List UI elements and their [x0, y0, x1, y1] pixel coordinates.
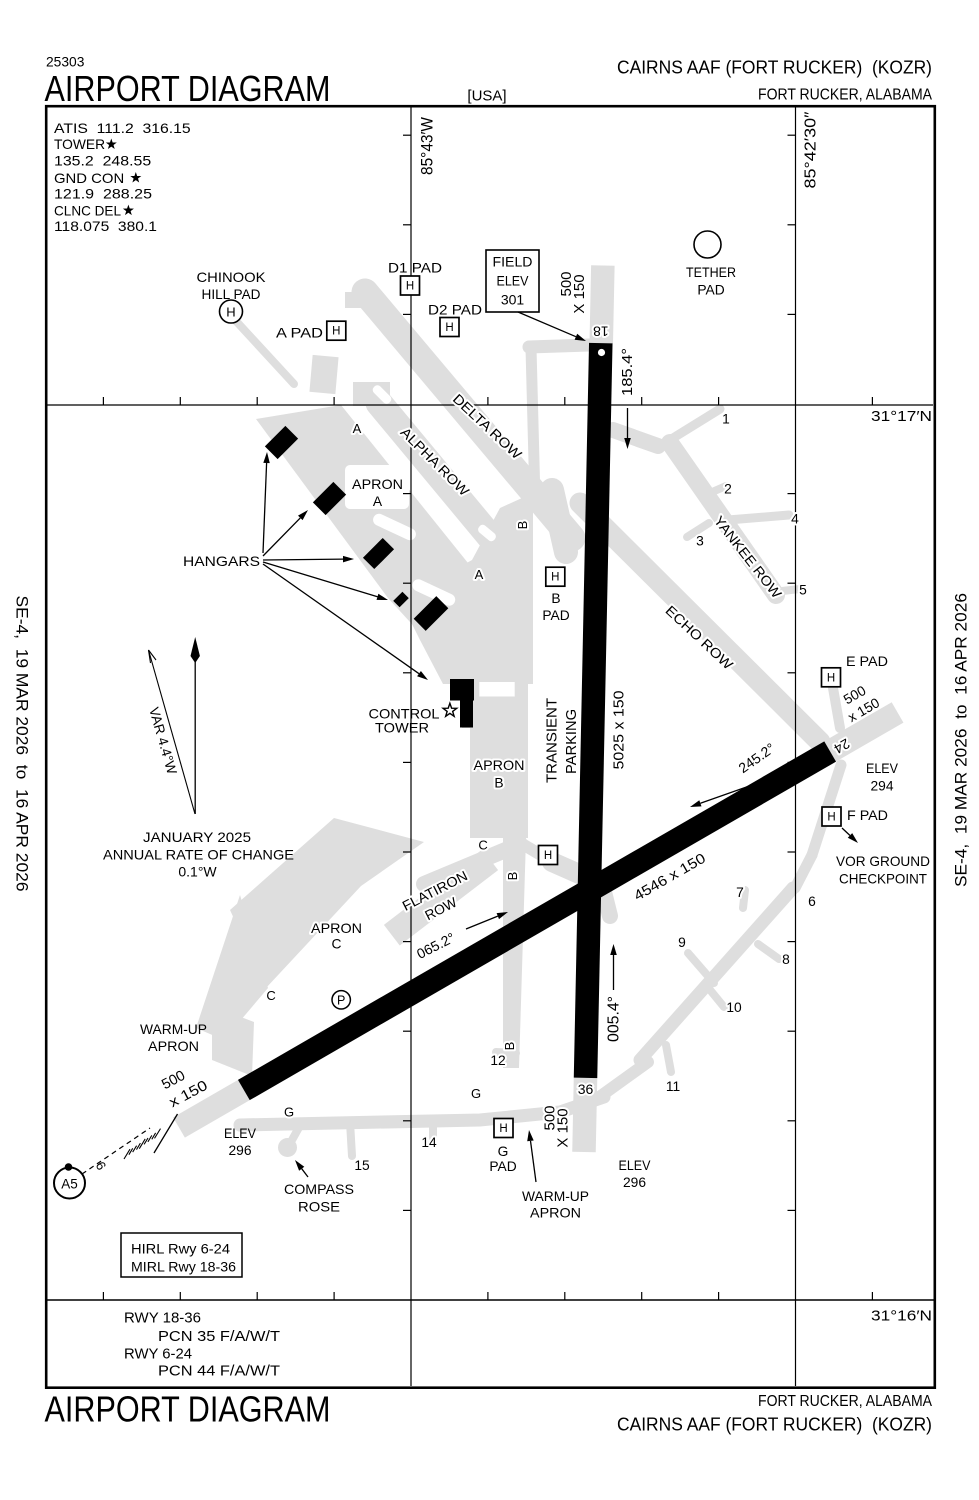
svg-text:H: H	[332, 326, 340, 338]
svg-text:PAD: PAD	[489, 1159, 516, 1174]
svg-text:PARKING: PARKING	[563, 709, 580, 774]
svg-text:296: 296	[623, 1175, 646, 1190]
svg-text:185.4°: 185.4°	[619, 348, 636, 396]
svg-text:B: B	[515, 521, 530, 530]
svg-text:6: 6	[808, 894, 816, 909]
svg-text:A5: A5	[61, 1177, 78, 1192]
svg-text:CAIRNS AAF (FORT RUCKER) (KOZ: CAIRNS AAF (FORT RUCKER) (KOZR)	[617, 57, 932, 78]
svg-text:A: A	[353, 421, 362, 436]
svg-text:SE-4, 19 MAR 2026 to 16 APR: SE-4, 19 MAR 2026 to 16 APR 2026	[13, 596, 31, 892]
svg-text:9: 9	[678, 935, 686, 950]
svg-text:296: 296	[228, 1143, 251, 1158]
svg-text:36: 36	[578, 1081, 594, 1097]
svg-text:ELEV: ELEV	[619, 1158, 652, 1173]
svg-text:5: 5	[799, 583, 807, 598]
svg-text:A: A	[373, 494, 383, 509]
svg-text:ELEV: ELEV	[224, 1126, 257, 1141]
svg-text:E PAD: E PAD	[846, 654, 888, 669]
svg-text:RWY 18-36: RWY 18-36	[124, 1311, 201, 1327]
svg-text:D1 PAD: D1 PAD	[388, 261, 442, 276]
svg-text:15: 15	[354, 1158, 370, 1173]
svg-text:F PAD: F PAD	[847, 808, 888, 823]
svg-text:2: 2	[724, 482, 732, 497]
svg-text:VOR GROUND: VOR GROUND	[836, 854, 930, 869]
svg-text:FORT RUCKER, ALABAMA: FORT RUCKER, ALABAMA	[758, 87, 932, 104]
svg-text:7: 7	[736, 885, 744, 900]
svg-text:FIELD: FIELD	[493, 254, 533, 270]
svg-text:HANGARS: HANGARS	[183, 554, 260, 569]
svg-text:COMPASS: COMPASS	[284, 1182, 354, 1197]
svg-text:PAD: PAD	[697, 283, 724, 298]
svg-text:CHINOOK: CHINOOK	[197, 270, 267, 285]
svg-text:H: H	[827, 812, 835, 824]
svg-text:JANUARY 2025: JANUARY 2025	[143, 829, 251, 845]
svg-text:B: B	[505, 872, 520, 881]
svg-text:H: H	[226, 305, 235, 320]
svg-text:P: P	[337, 994, 345, 1008]
svg-text:X 150: X 150	[555, 1108, 572, 1147]
svg-text:AIRPORT DIAGRAM: AIRPORT DIAGRAM	[45, 1389, 331, 1430]
svg-text:11: 11	[666, 1079, 680, 1094]
svg-text:APRON: APRON	[311, 921, 362, 936]
svg-text:G: G	[498, 1144, 509, 1159]
svg-text:PAD: PAD	[542, 608, 569, 623]
svg-text:WARM-UP: WARM-UP	[140, 1022, 207, 1037]
svg-text:G: G	[471, 1086, 481, 1101]
svg-text:85°43′W: 85°43′W	[419, 116, 437, 175]
svg-text:C: C	[266, 988, 275, 1003]
svg-text:AIRPORT DIAGRAM: AIRPORT DIAGRAM	[45, 68, 331, 109]
svg-text:ELEV: ELEV	[866, 761, 899, 776]
svg-text:APRON: APRON	[352, 477, 403, 492]
svg-text:ELEV: ELEV	[497, 273, 530, 289]
svg-text:ROSE: ROSE	[298, 1200, 340, 1215]
svg-text:HIRL Rwy 6-24: HIRL Rwy 6-24	[131, 1241, 230, 1257]
svg-text:B: B	[494, 776, 503, 791]
svg-text:PCN 35 F/A/W/T: PCN 35 F/A/W/T	[158, 1329, 280, 1345]
svg-text:A PAD: A PAD	[276, 326, 323, 341]
svg-text:294: 294	[870, 779, 893, 794]
svg-text:135.2 248.55: 135.2 248.55	[54, 154, 152, 169]
svg-text:8: 8	[782, 952, 790, 967]
svg-text:ANNUAL RATE OF CHANGE: ANNUAL RATE OF CHANGE	[103, 847, 294, 863]
svg-text:TOWER: TOWER	[54, 137, 105, 152]
svg-text:4: 4	[791, 512, 799, 527]
svg-text:APRON: APRON	[530, 1206, 581, 1221]
svg-text:0.1°W: 0.1°W	[178, 864, 217, 880]
svg-text:GND CON: GND CON	[54, 171, 124, 186]
svg-text:H: H	[406, 281, 414, 293]
svg-text:TRANSIENT: TRANSIENT	[544, 698, 561, 783]
svg-text:[USA]: [USA]	[467, 88, 506, 105]
svg-text:APRON: APRON	[148, 1039, 199, 1054]
svg-text:12: 12	[490, 1053, 505, 1068]
svg-text:CAIRNS AAF (FORT RUCKER) (KOZ: CAIRNS AAF (FORT RUCKER) (KOZR)	[617, 1414, 932, 1435]
svg-text:H: H	[499, 1123, 507, 1135]
svg-text:PCN 44 F/A/W/T: PCN 44 F/A/W/T	[158, 1364, 280, 1380]
svg-text:FORT RUCKER, ALABAMA: FORT RUCKER, ALABAMA	[758, 1393, 932, 1410]
svg-text:WARM-UP: WARM-UP	[522, 1189, 589, 1204]
svg-text:H: H	[827, 672, 835, 684]
svg-text:B: B	[551, 591, 560, 606]
svg-text:005.4°: 005.4°	[606, 996, 623, 1042]
svg-text:31°17′N: 31°17′N	[871, 408, 932, 425]
svg-text:APRON: APRON	[474, 758, 525, 773]
svg-text:H: H	[544, 850, 552, 862]
svg-text:301: 301	[501, 292, 525, 308]
svg-text:C: C	[478, 838, 487, 853]
svg-text:31°16′N: 31°16′N	[871, 1308, 932, 1325]
svg-text:CLNC DEL: CLNC DEL	[54, 204, 121, 219]
svg-text:85°42′30″: 85°42′30″	[803, 111, 820, 188]
svg-text:121.9 288.25: 121.9 288.25	[54, 186, 152, 201]
svg-text:1: 1	[722, 412, 730, 427]
svg-text:10: 10	[726, 1000, 742, 1015]
svg-text:D2 PAD: D2 PAD	[428, 303, 482, 318]
svg-text:A: A	[475, 567, 484, 582]
svg-text:SE-4, 19 MAR 2026 to 16 APR: SE-4, 19 MAR 2026 to 16 APR 2026	[953, 593, 971, 887]
svg-text:TETHER: TETHER	[686, 265, 736, 280]
svg-text:MIRL Rwy 18-36: MIRL Rwy 18-36	[131, 1259, 236, 1275]
svg-text:RWY 6-24: RWY 6-24	[124, 1347, 192, 1363]
svg-text:X 150: X 150	[571, 274, 588, 313]
svg-text:G: G	[284, 1105, 294, 1120]
svg-text:CHECKPOINT: CHECKPOINT	[839, 872, 928, 887]
svg-text:5025 x 150: 5025 x 150	[612, 690, 628, 769]
svg-text:C: C	[332, 937, 342, 952]
svg-text:B: B	[502, 1042, 517, 1051]
svg-text:ATIS 111.2 316.15: ATIS 111.2 316.15	[54, 121, 191, 136]
svg-text:TOWER: TOWER	[375, 721, 429, 736]
svg-text:CONTROL: CONTROL	[369, 707, 440, 722]
svg-text:H: H	[445, 322, 453, 334]
svg-text:18: 18	[593, 323, 609, 339]
svg-text:H: H	[551, 572, 559, 584]
svg-text:HILL PAD: HILL PAD	[202, 287, 261, 302]
svg-text:14: 14	[421, 1135, 437, 1150]
svg-text:3: 3	[696, 534, 704, 549]
svg-text:118.075 380.1: 118.075 380.1	[54, 219, 157, 234]
